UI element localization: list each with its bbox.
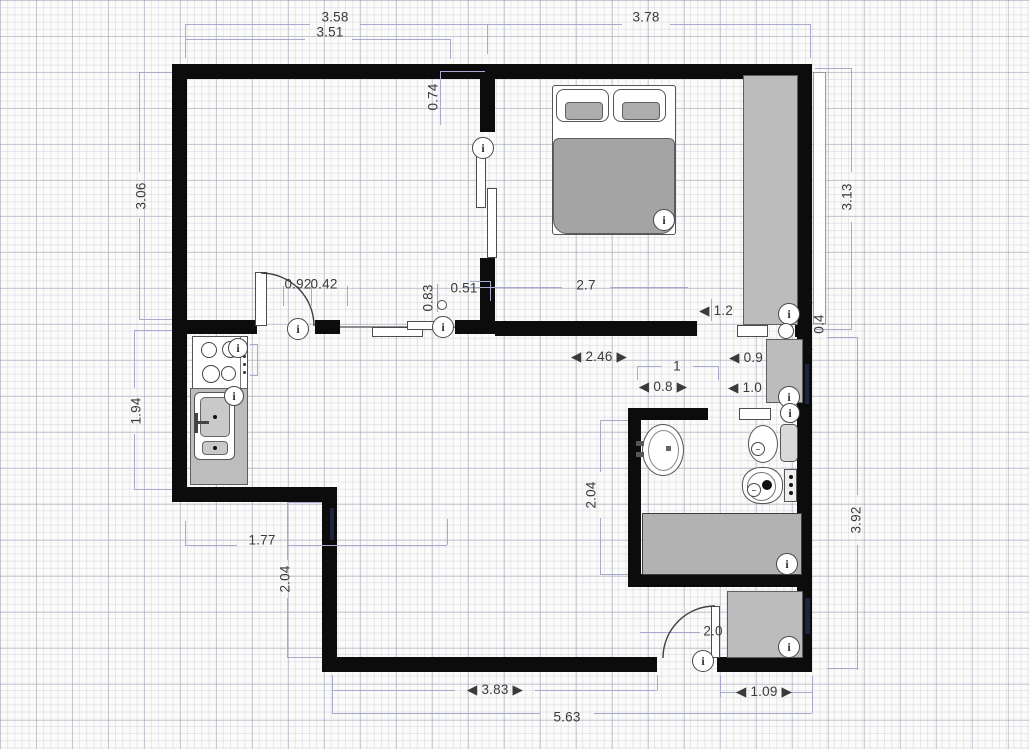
info-icon-stove[interactable]: i bbox=[228, 338, 248, 358]
floor-plan-canvas[interactable]: 3.583.513.780.743.063.131.940.920.420.83… bbox=[0, 0, 1029, 749]
door-swing-arcs bbox=[0, 0, 1029, 749]
door-pivot[interactable] bbox=[778, 323, 794, 339]
dimension-label: 3.78 bbox=[632, 10, 659, 25]
dimension-label: ◀ 0.9 bbox=[729, 350, 763, 366]
window-mark-entry-right-wall[interactable] bbox=[805, 598, 810, 634]
dimension-label: 3.06 bbox=[134, 182, 149, 209]
dimension-label: 0.42 bbox=[310, 277, 337, 292]
dimension-label: ◀ 1.2 bbox=[699, 303, 733, 319]
dimension-label: 1.94 bbox=[129, 397, 144, 424]
dimension-label: 1.77 bbox=[248, 533, 275, 548]
dimension-label: ◀ 1.09 ▶ bbox=[736, 684, 792, 700]
dimension-label: 3.92 bbox=[849, 506, 864, 533]
dimension-label: 3.58 bbox=[321, 10, 348, 25]
dimension-label: 2.0 bbox=[703, 624, 722, 639]
info-icon-entry-door[interactable]: i bbox=[692, 650, 714, 672]
dimension-label: ◀ 0.8 ▶ bbox=[639, 379, 687, 395]
window-mark-lower-left-wall[interactable] bbox=[330, 508, 334, 540]
info-icon-bathroom-door[interactable]: i bbox=[780, 403, 800, 423]
dimension-label: ◀ 2.46 ▶ bbox=[571, 349, 627, 365]
dimension-label: 3.13 bbox=[840, 183, 855, 210]
dimension-label: 1 bbox=[673, 359, 681, 374]
dimension-label: 2.7 bbox=[576, 278, 595, 293]
bidet-mini-icon[interactable]: – bbox=[747, 483, 761, 497]
info-icon-bed[interactable]: i bbox=[653, 209, 675, 231]
door-handle-oval[interactable] bbox=[437, 300, 447, 310]
info-icon-sliding-door-hall[interactable]: i bbox=[432, 316, 454, 338]
info-icon-kitchen-sink[interactable]: i bbox=[224, 386, 244, 406]
dimension-label: 5.63 bbox=[553, 710, 580, 725]
dimension-label: ◀ 3.83 ▶ bbox=[467, 682, 523, 698]
info-icon-bathtub[interactable]: i bbox=[776, 553, 798, 575]
info-icon-sliding-door-bedroom[interactable]: i bbox=[472, 137, 494, 159]
info-icon-interior-door[interactable]: i bbox=[287, 318, 309, 340]
dimension-label: 0.83 bbox=[421, 284, 436, 311]
dimension-label: 0.92 bbox=[284, 277, 311, 292]
info-icon-wardrobe[interactable]: i bbox=[778, 303, 800, 325]
dimension-label: 3.51 bbox=[316, 25, 343, 40]
dimension-label: ◀ 1.0 bbox=[728, 380, 762, 396]
dimension-label: 2.04 bbox=[584, 481, 599, 508]
dimension-label: ▼ bbox=[805, 346, 814, 356]
dimension-label: 0.51 bbox=[450, 281, 477, 296]
window-mark-hall-right-wall[interactable] bbox=[805, 364, 809, 404]
info-icon-entry-cabinet[interactable]: i bbox=[778, 636, 800, 658]
dimension-label: ▲ bbox=[805, 295, 814, 305]
dimension-label: 0.74 bbox=[426, 83, 441, 110]
dimension-label: 2.04 bbox=[278, 565, 293, 592]
dimension-label: 0.4 bbox=[812, 314, 827, 333]
toilet-mini-icon[interactable]: – bbox=[751, 442, 765, 456]
